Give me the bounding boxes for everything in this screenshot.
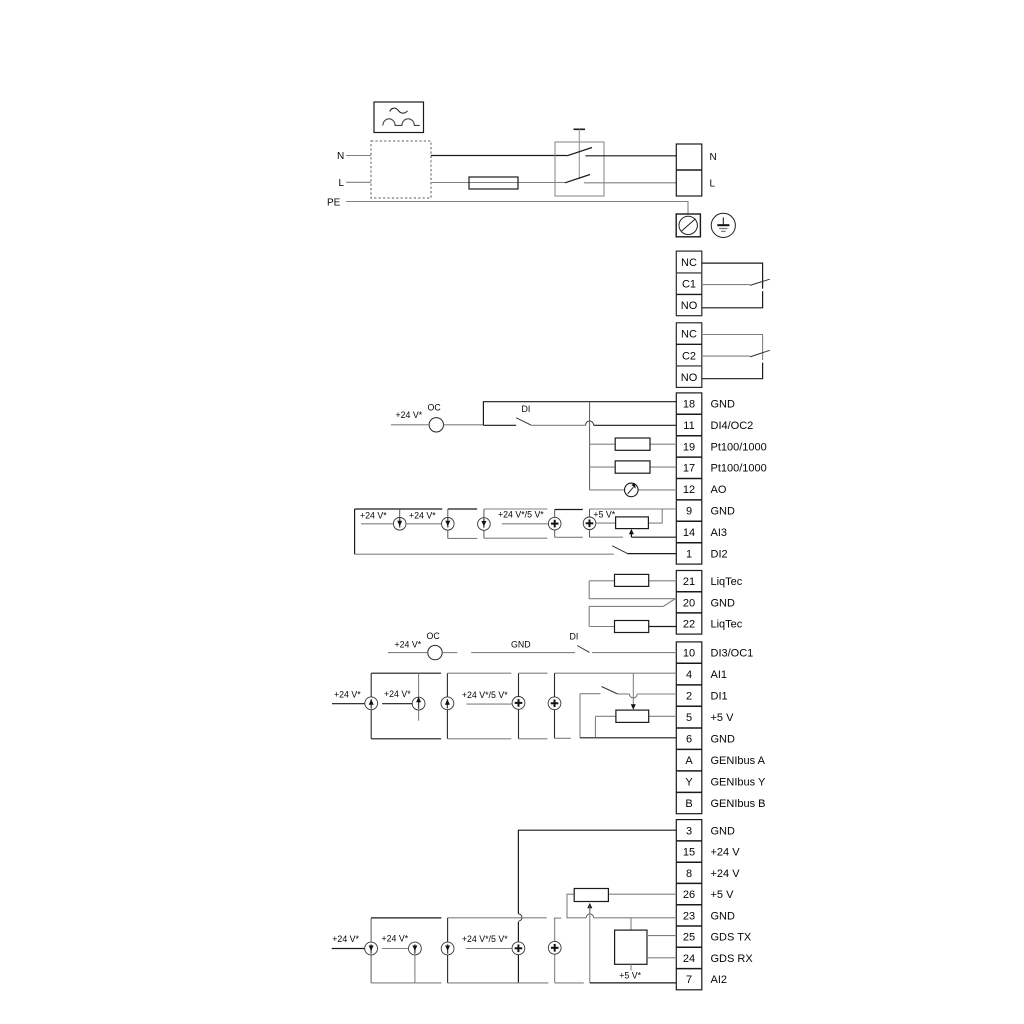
svg-text:N: N (337, 151, 344, 162)
svg-text:N: N (710, 152, 717, 163)
svg-text:19: 19 (683, 441, 695, 453)
svg-text:NO: NO (681, 300, 698, 312)
svg-text:GND: GND (711, 734, 736, 746)
svg-text:21: 21 (683, 576, 695, 588)
svg-text:NC: NC (681, 257, 697, 269)
svg-text:GND: GND (711, 399, 736, 411)
svg-text:8: 8 (686, 868, 692, 880)
svg-text:GENIbus A: GENIbus A (711, 755, 766, 767)
svg-text:L: L (339, 178, 345, 189)
svg-text:DI4/OC2: DI4/OC2 (711, 420, 754, 432)
svg-text:Y: Y (685, 777, 693, 789)
svg-text:5: 5 (686, 712, 692, 724)
svg-text:+24 V*: +24 V* (382, 934, 409, 944)
svg-text:+24 V*: +24 V* (409, 510, 436, 520)
svg-text:OC: OC (428, 403, 442, 413)
svg-text:NO: NO (681, 372, 698, 384)
svg-text:9: 9 (686, 506, 692, 518)
svg-text:25: 25 (683, 932, 695, 944)
svg-text:4: 4 (686, 669, 692, 681)
svg-text:AI1: AI1 (711, 669, 728, 681)
svg-text:7: 7 (686, 974, 692, 986)
svg-text:3: 3 (686, 825, 692, 837)
svg-text:PE: PE (327, 197, 341, 208)
svg-text:+5 V: +5 V (711, 889, 735, 901)
svg-text:LiqTec: LiqTec (711, 576, 743, 588)
svg-text:GND: GND (511, 640, 531, 650)
svg-text:GDS RX: GDS RX (711, 953, 754, 965)
svg-text:Pt100/1000: Pt100/1000 (711, 463, 767, 475)
svg-text:+24 V*/5 V*: +24 V*/5 V* (498, 510, 544, 520)
svg-text:GND: GND (711, 506, 736, 518)
svg-text:L: L (710, 179, 716, 190)
svg-text:+24 V*: +24 V* (360, 510, 387, 520)
svg-text:GENIbus Y: GENIbus Y (711, 777, 766, 789)
svg-text:12: 12 (683, 484, 695, 496)
svg-text:+24 V: +24 V (711, 868, 741, 880)
svg-text:AO: AO (711, 484, 727, 496)
svg-text:DI3/OC1: DI3/OC1 (711, 648, 754, 660)
svg-text:Pt100/1000: Pt100/1000 (711, 441, 767, 453)
svg-text:22: 22 (683, 619, 695, 631)
svg-text:OC: OC (427, 631, 441, 641)
svg-text:A: A (685, 755, 693, 767)
svg-text:NC: NC (681, 329, 697, 341)
svg-text:DI: DI (522, 404, 531, 414)
svg-text:AI3: AI3 (711, 527, 728, 539)
svg-text:GND: GND (711, 597, 736, 609)
svg-text:+5 V*: +5 V* (619, 971, 641, 981)
svg-text:+24 V*/5 V*: +24 V*/5 V* (462, 934, 508, 944)
svg-text:6: 6 (686, 734, 692, 746)
svg-text:+5 V: +5 V (711, 712, 735, 724)
svg-text:23: 23 (683, 910, 695, 922)
svg-text:+24 V*: +24 V* (334, 690, 361, 700)
svg-text:20: 20 (683, 597, 695, 609)
svg-text:GENIbus B: GENIbus B (711, 798, 766, 810)
svg-text:DI: DI (570, 632, 579, 642)
svg-text:24: 24 (683, 953, 695, 965)
svg-text:18: 18 (683, 399, 695, 411)
svg-text:+24 V*: +24 V* (396, 410, 423, 420)
svg-text:GND: GND (711, 910, 736, 922)
svg-text:1: 1 (686, 548, 692, 560)
svg-text:+5 V*: +5 V* (593, 510, 615, 520)
svg-text:GDS TX: GDS TX (711, 932, 752, 944)
svg-text:+24 V*/5 V*: +24 V*/5 V* (462, 690, 508, 700)
svg-text:B: B (685, 798, 692, 810)
svg-text:15: 15 (683, 847, 695, 859)
svg-text:+24 V*: +24 V* (384, 689, 411, 699)
svg-text:26: 26 (683, 889, 695, 901)
svg-text:DI2: DI2 (711, 548, 728, 560)
svg-text:2: 2 (686, 691, 692, 703)
svg-text:LiqTec: LiqTec (711, 619, 743, 631)
svg-text:DI1: DI1 (711, 691, 728, 703)
svg-text:AI2: AI2 (711, 974, 728, 986)
svg-text:C2: C2 (682, 350, 696, 362)
svg-text:10: 10 (683, 648, 695, 660)
svg-text:14: 14 (683, 527, 695, 539)
svg-text:17: 17 (683, 463, 695, 475)
svg-text:+24 V*: +24 V* (332, 934, 359, 944)
svg-text:+24 V*: +24 V* (395, 639, 422, 649)
svg-text:11: 11 (683, 420, 694, 432)
svg-text:C1: C1 (682, 279, 696, 291)
svg-text:+24 V: +24 V (711, 847, 741, 859)
svg-text:GND: GND (711, 825, 736, 837)
